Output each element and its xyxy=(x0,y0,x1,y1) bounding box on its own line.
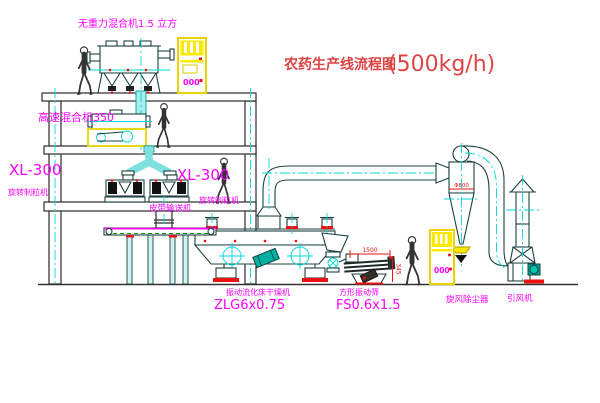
control-cabinet-2: 000 xyxy=(430,230,454,284)
cabinet1-display: 000 xyxy=(183,78,200,87)
diagram-canvas: 000 xyxy=(0,0,600,403)
cad-flow-diagram: 000 xyxy=(0,0,600,403)
label-screen-model: FS0.6x1.5 xyxy=(336,298,401,313)
label-granulator-left-model: XL-300 xyxy=(9,161,61,179)
worker-figure-floor2 xyxy=(156,104,170,147)
granulator-left xyxy=(105,175,145,202)
label-cyclone: 旋风除尘器 xyxy=(446,294,489,305)
label-granulator-center-model: XL-300 xyxy=(177,166,229,184)
label-granulator-left-name: 旋转制粒机 xyxy=(8,187,48,197)
roof-slab xyxy=(42,93,256,101)
control-cabinet-1: 000 xyxy=(178,38,206,93)
label-highspeed-mixer: 高速混合机350 xyxy=(38,110,114,124)
diagram-title: 农药生产线流程图 (500kg/h) xyxy=(283,52,495,77)
induced-draft-fan xyxy=(508,263,544,284)
cabinet2-display: 000 xyxy=(434,266,450,275)
label-screen-name: 方形振动筛 xyxy=(339,287,379,297)
gravity-free-mixer xyxy=(87,41,174,94)
label-gravity-mixer: 无重力混合机1.5 立方 xyxy=(78,17,177,30)
worker-figure-ground xyxy=(405,237,421,285)
label-dryer-name: 振动流化床干燥机 xyxy=(226,287,290,297)
hood-neck xyxy=(258,216,280,229)
vibrating-screen: 1500 345 xyxy=(344,247,402,284)
dryer-discharge xyxy=(322,233,348,272)
title-capacity: (500kg/h) xyxy=(388,52,495,77)
label-dryer-model: ZLG6x0.75 xyxy=(214,298,285,313)
label-granulator-center-name: 旋转制粒机 xyxy=(199,195,239,205)
label-fan: 引风机 xyxy=(507,293,533,304)
label-belt-conveyor: 皮带输送机 xyxy=(149,203,192,214)
svg-text:1500: 1500 xyxy=(362,247,377,254)
svg-text:345: 345 xyxy=(395,263,402,275)
title-text: 农药生产线流程图 xyxy=(283,56,396,73)
exhaust-duct-system xyxy=(257,158,452,229)
